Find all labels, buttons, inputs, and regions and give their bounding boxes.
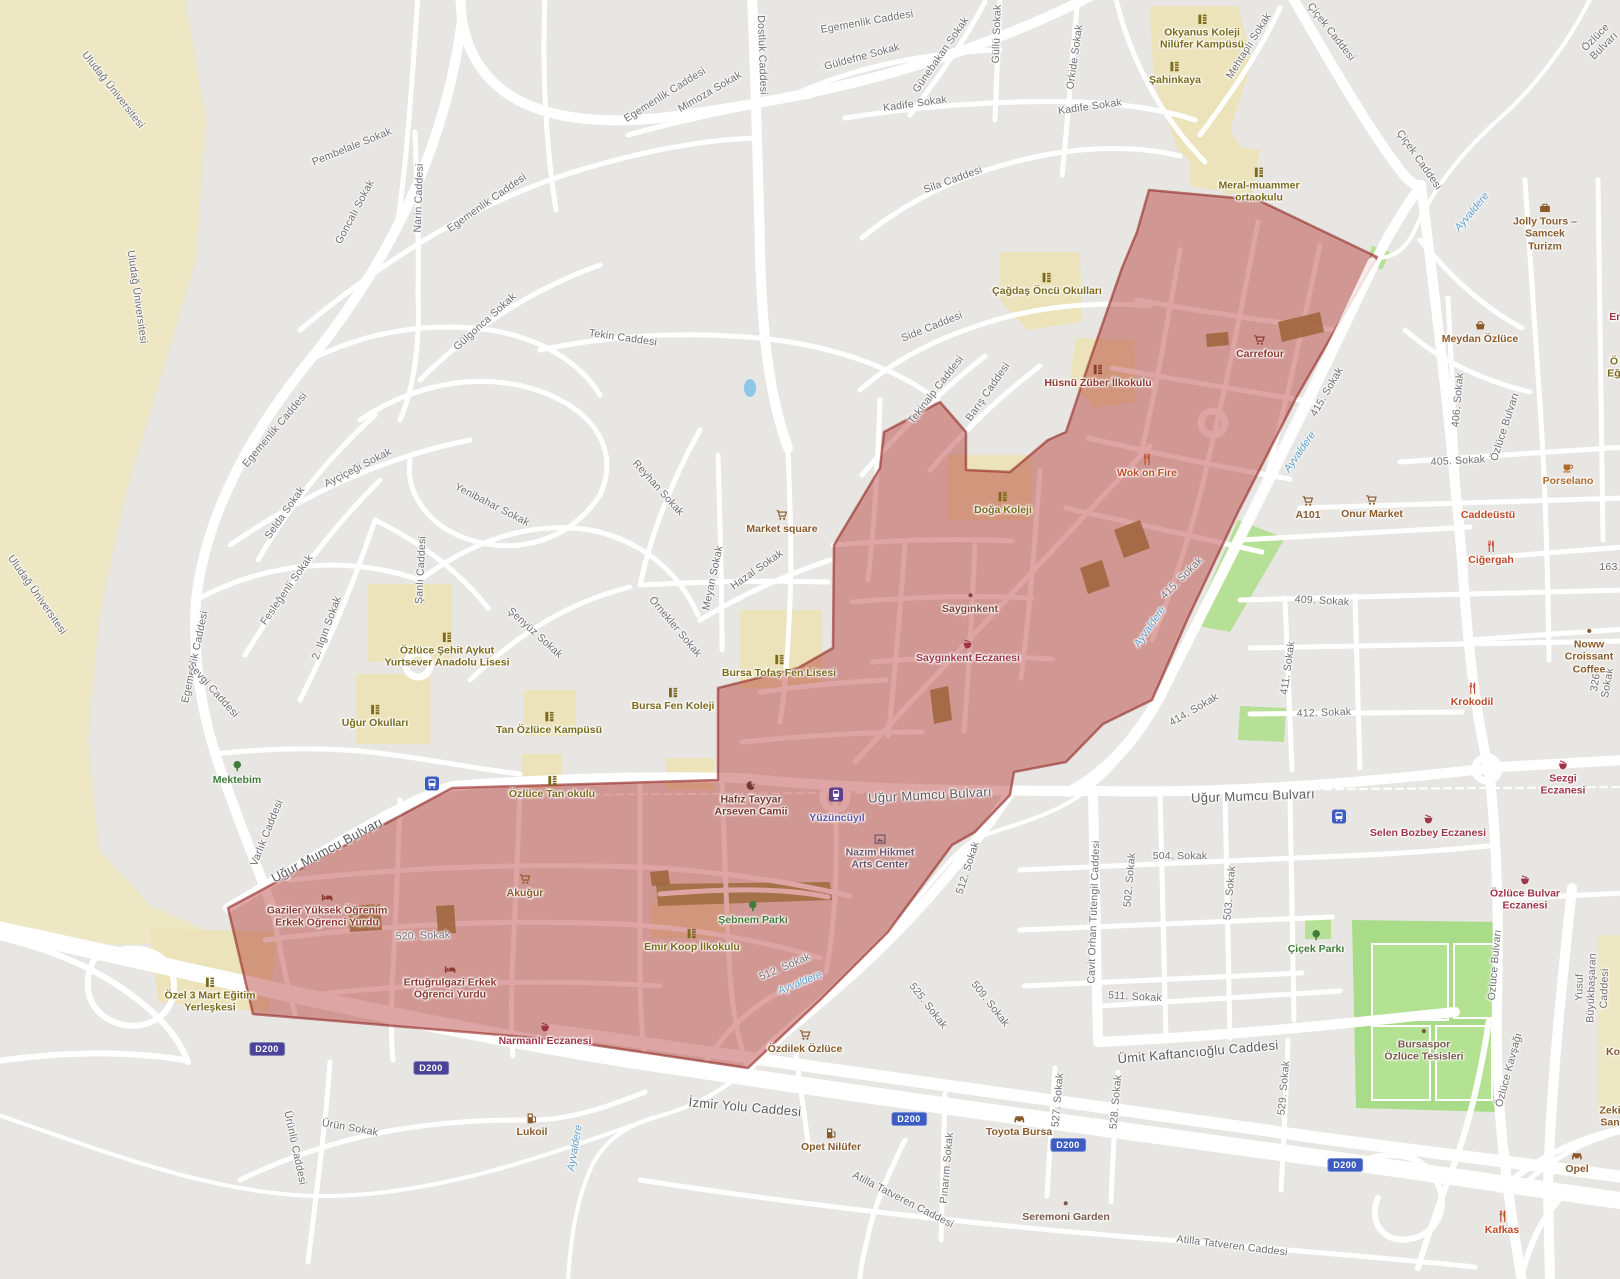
map-label: Varlık Caddesi (248, 798, 286, 868)
map-label: 412. Sokak (1297, 706, 1352, 720)
poi-label[interactable]: Krokodil (1451, 682, 1494, 708)
map-label: Gülgonca Sokak (451, 291, 519, 354)
map-label: 509. Sokak (968, 979, 1011, 1030)
poi-label[interactable]: Doğa Koleji (974, 490, 1032, 516)
cart-icon (775, 509, 788, 522)
poi-label[interactable]: Opet Nilüfer (801, 1127, 861, 1153)
poi-label[interactable]: Ertuğrulgazi Erkek Öğrenci Yurdu (404, 963, 497, 1002)
map-label: 525. Sokak (906, 981, 949, 1032)
map-label: 503. Sokak (1221, 865, 1238, 920)
map-label: Ayvaldere (565, 1124, 585, 1172)
map-label: Barış Caddesi (963, 360, 1012, 423)
fork-icon (1495, 1210, 1508, 1223)
map-label: Cavit Orhan Tütengil Caddesi (1085, 840, 1102, 984)
poi-label[interactable]: Akuğur (507, 873, 544, 899)
label-text: Özdilek Özlüce (768, 1043, 843, 1055)
label-text: Egemenlik Caddesi (179, 610, 210, 704)
route-badge-d200: D200 (1050, 1138, 1086, 1152)
map-label: Mimoza Sokak (676, 69, 744, 115)
label-text: A101 (1295, 509, 1320, 521)
label-text: Carrefour (1236, 348, 1284, 360)
map-label: Orkide Sokak (1064, 24, 1085, 91)
label-text: Ayvaldere (1452, 190, 1491, 233)
map-label: Mehtaplı Sokak (1224, 11, 1274, 81)
fuel-icon (825, 1127, 838, 1140)
mortar-icon (961, 638, 974, 651)
label-text: Kadife Sokak (882, 93, 947, 114)
bed-icon (321, 891, 334, 904)
label-text: İzmir Yolu Caddesi (688, 1094, 802, 1119)
map-label: Uludağ Üniversitesi (5, 553, 69, 637)
poi-label[interactable]: Selen Bozbey Eczanesi (1370, 813, 1486, 839)
map-label: Sila Caddesi (922, 164, 984, 197)
poi-label[interactable]: Çağdaş Öncü Okulları (992, 271, 1102, 297)
map-label: Günebakan Sokak (910, 15, 971, 95)
map-label: Kadife Sokak (882, 93, 947, 114)
poi-label[interactable]: Özlüce Bulvar Eczanesi (1478, 874, 1573, 913)
mortar-icon (1557, 759, 1570, 772)
poi-label[interactable]: Saygınkent Eczanesi (916, 638, 1020, 664)
label-text: Meydan Özlüce (1442, 333, 1518, 345)
map-label: Uludağ Üniversitesi (79, 49, 147, 131)
label-text: Uğur Mumcu Bulvarı (269, 814, 385, 885)
map-label: Çiçek Caddesi (1394, 128, 1444, 193)
label-text: 504. Sokak (1153, 850, 1208, 862)
map-label: Şanlı Caddesi (413, 536, 429, 605)
poi-label[interactable]: Saygınkent (942, 589, 998, 615)
school-icon (368, 703, 381, 716)
bed-icon (444, 963, 457, 976)
map-label: Pembelale Sokak (310, 125, 393, 168)
fork-icon (1466, 682, 1479, 695)
school-icon (543, 710, 556, 723)
label-text: Doğa Koleji (974, 504, 1032, 516)
label-text: Şahinkaya (1149, 74, 1201, 86)
label-text: Atilla Tatveren Caddesi (1176, 1233, 1288, 1259)
label-text: Dostluk Caddesi (755, 15, 770, 95)
mortar-icon (538, 1021, 551, 1034)
label-text: Narmanlı Eczanesi (499, 1035, 592, 1047)
label-text: Narin Caddesi (412, 163, 426, 233)
map-label: Ayvaldere (776, 969, 824, 998)
map-label: Narin Caddesi (412, 163, 427, 233)
label-text: Mimoza Sokak (676, 69, 744, 115)
label-text: 409. Sokak (1294, 593, 1349, 608)
map-label: Tekinalp Caddesi (906, 353, 967, 426)
label-text: Günebakan Sokak (910, 15, 971, 95)
label-text: Mektebim (213, 774, 261, 786)
map-label: Güldefne Sokak (823, 41, 901, 73)
map-label: Yenibahar Sokak (453, 481, 532, 529)
poi-label[interactable]: Özdilek Özlüce (768, 1029, 843, 1055)
label-text: Uğur Mumcu Bulvarı (868, 784, 993, 805)
poi-label[interactable]: Bursa Tofaş Fen Lisesi (722, 653, 836, 679)
label-text: Özlüce Bulvar Eczanesi (1490, 888, 1560, 912)
poi-label[interactable]: Kafkas (1485, 1210, 1519, 1236)
label-text: Yusuf Büyükbaşaran Caddesi (1573, 953, 1611, 1023)
poi-label[interactable]: Şahinkaya (1149, 60, 1201, 86)
label-text: Çağdaş Öncü Okulları (992, 285, 1102, 297)
bus-stop-icon[interactable] (425, 777, 439, 796)
fuel-icon (525, 1112, 538, 1125)
label-text: Özlüce Bulvarı (1488, 391, 1521, 462)
map-label: Ümit Kaftancıoğlu Caddesi (1117, 1037, 1279, 1066)
label-text: Bursa Fen Koleji (632, 700, 715, 712)
label-text: Porselano (1543, 475, 1594, 487)
label-text: Tan Özlüce Kampüsü (496, 724, 602, 736)
label-text: Zeki San (1599, 1105, 1620, 1129)
label-text: Caddeüstü (1461, 509, 1515, 521)
dot-icon (964, 589, 977, 602)
label-text: Varlık Caddesi (248, 798, 285, 868)
label-text: Jolly Tours – Samcek Turizm (1513, 215, 1577, 252)
label-text: 406. Sokak (1449, 372, 1466, 427)
label-text: Opet Nilüfer (801, 1141, 861, 1153)
label-text: Fesleğenli Sokak (258, 552, 316, 627)
map-label: 411. Sokak (1278, 641, 1298, 696)
label-text: Market square (746, 523, 817, 535)
poi-label[interactable]: Bursa Fen Koleji (632, 686, 715, 712)
label-text: Goncalı Sokak (333, 178, 377, 246)
label-text: 528. Sokak (1107, 1074, 1124, 1129)
poi-label[interactable]: Toyota Bursa (986, 1112, 1052, 1138)
label-text: Ürün Sokak (321, 1117, 379, 1139)
map-label: Atilla Tatveren Caddesi (1176, 1233, 1288, 1259)
car-icon (1571, 1149, 1584, 1162)
label-text: 412. Sokak (1297, 706, 1352, 720)
label-text: Selda Sokak (262, 484, 307, 541)
crescent-icon (744, 780, 757, 793)
label-text: Uğur Okulları (342, 717, 409, 729)
school-icon (686, 927, 699, 940)
poi-label[interactable]: Özel 3 Mart Eğitim Yerleşkesi (164, 976, 255, 1015)
poi-label[interactable]: Ö Eğ (1607, 356, 1620, 381)
label-text: Ümit Kaftancıoğlu Caddesi (1117, 1037, 1279, 1066)
map-label: Egemenlik Caddesi (179, 610, 211, 704)
poi-label[interactable]: Sezgi Eczanesi (1535, 759, 1592, 798)
label-text: Egemenlik Caddesi (445, 171, 529, 235)
label-text: Yüzüncüyıl (809, 812, 864, 824)
poi-label[interactable]: Mektebim (213, 760, 261, 786)
label-text: 414. Sokak (1167, 691, 1220, 729)
label-text: Selen Bozbey Eczanesi (1370, 827, 1486, 839)
label-text: Örnekler Sokak (646, 594, 704, 659)
map-label: 504. Sokak (1153, 850, 1208, 862)
cart-icon (1301, 495, 1314, 508)
poi-label[interactable]: Ciğergah (1468, 540, 1514, 566)
route-badge-d200: D200 (891, 1112, 927, 1126)
map-label: 415. Sokak (1158, 554, 1205, 601)
label-text: Akuğur (507, 887, 544, 899)
label-text: Cavit Orhan Tütengil Caddesi (1085, 840, 1102, 983)
poi-label[interactable]: Caddeüstü (1461, 495, 1515, 521)
map-label: Egemenlik Caddesi (622, 65, 708, 125)
poi-label[interactable]: Ko (1606, 1046, 1620, 1058)
map-label: 326. Sokak (1587, 665, 1617, 699)
label-text: 520. Sokak (396, 929, 451, 943)
label-text: Okyanus Koleji Nilüfer Kampüsü (1160, 27, 1244, 51)
label-text: Ayvaldere (565, 1124, 585, 1172)
map-label: Özlüce Kavşağı (1493, 1032, 1525, 1109)
school-icon (1253, 166, 1266, 179)
label-text: 503. Sokak (1221, 865, 1238, 920)
label-text: Mehtaplı Sokak (1224, 11, 1274, 81)
label-text: Sila Caddesi (922, 164, 984, 196)
cart-icon (1365, 494, 1378, 507)
route-badge-d200: D200 (1327, 1158, 1363, 1172)
map-label: 520. Sokak (396, 929, 451, 943)
label-text: 512. Sokak (757, 951, 812, 983)
map-label: Uğur Mumcu Bulvarı (1191, 786, 1315, 806)
poi-label[interactable]: Özlüce Tan okulu (509, 774, 595, 800)
label-text: Bursaspor Özlüce Tesisleri (1384, 1039, 1463, 1063)
label-text: Yenibahar Sokak (453, 481, 532, 529)
label-text: Ko (1606, 1046, 1620, 1058)
label-text: Gaziler Yüksek Öğrenim Erkek Öğrenci Yur… (267, 905, 388, 929)
dot-icon (1060, 1197, 1073, 1210)
poi-label[interactable]: Carrefour (1236, 334, 1284, 360)
label-text: Tekin Caddesi (588, 327, 658, 348)
poi-label[interactable]: Narmanlı Eczanesi (499, 1021, 592, 1047)
label-text: Gülgonca Sokak (451, 291, 518, 353)
label-text: Krokodil (1451, 696, 1494, 708)
map-label: Güllü Sokak (990, 4, 1004, 63)
map-label: Ürünlü Caddesi (281, 1110, 309, 1186)
school-icon (1195, 13, 1208, 26)
label-text: Emir Koop İlkokulu (644, 941, 740, 953)
route-badge-d200: D200 (413, 1061, 449, 1075)
label-text: Uludağ Üniversitesi (125, 249, 150, 344)
map-label: 2. Ilgın Sokak (310, 595, 344, 662)
map-label: Atilla Tatveren Caddesi (850, 1169, 955, 1231)
label-text: Egemenlik Caddesi (622, 65, 708, 125)
map-label: Özlüce Bulvarı (1579, 21, 1620, 63)
map-label: 528. Sokak (1107, 1074, 1124, 1129)
label-text: Pembelale Sokak (310, 125, 393, 168)
label-text: Nazım Hikmet Arts Center (846, 847, 915, 871)
label-text: Onur Market (1341, 508, 1403, 520)
poi-label[interactable]: Hafız Tayyar Arseven Camii (715, 780, 788, 819)
poi-label[interactable]: Yüzüncüyıl (809, 812, 864, 824)
label-text: Egemenlik Caddesi (240, 390, 310, 470)
cup-icon (1562, 461, 1575, 474)
label-text: Şebnem Parkı (718, 914, 787, 926)
car-icon (1012, 1112, 1025, 1125)
tree-icon (1310, 929, 1323, 942)
map-label: Pınarım Sokak (938, 1132, 957, 1204)
map-label: Ürün Sokak (321, 1117, 379, 1139)
map-label: Uludağ Üniversitesi (124, 249, 149, 344)
poi-label[interactable]: A101 (1295, 495, 1320, 521)
train-station-icon[interactable] (829, 788, 843, 807)
map-label: 527. Sokak (1049, 1072, 1066, 1127)
label-text: Wok on Fire (1117, 467, 1177, 479)
school-icon (773, 653, 786, 666)
label-text: Uğur Mumcu Bulvarı (1191, 786, 1315, 805)
map-label: Şenyüz Sokak (505, 605, 565, 661)
map-label: Side Caddesi (900, 309, 965, 345)
poi-label[interactable]: Onur Market (1341, 494, 1403, 520)
label-text: Ciğergah (1468, 554, 1514, 566)
label-text: Orkide Sokak (1064, 24, 1085, 90)
label-text: Ö Eğ (1607, 356, 1620, 380)
map-label: Ayvaldere (1452, 190, 1491, 234)
poi-label[interactable]: Opel (1565, 1149, 1588, 1175)
poi-label[interactable]: Özlüce Şehit Aykut Yurtsever Anadolu Lis… (384, 631, 509, 670)
map-label: Egemenlik Caddesi (820, 8, 915, 36)
poi-label[interactable]: Zeki San (1599, 1105, 1620, 1130)
label-text: 525. Sokak (907, 981, 950, 1031)
map-label: Egemenlik Caddesi (445, 171, 529, 235)
label-text: 415. Sokak (1158, 554, 1205, 601)
label-text: 405. Sokak (1430, 453, 1485, 468)
poi-label[interactable]: Wok on Fire (1117, 453, 1177, 479)
map-label: 502. Sokak (1121, 852, 1138, 907)
map-label: 405. Sokak (1430, 453, 1485, 468)
label-text: Çiçek Parkı (1288, 943, 1345, 955)
label-text: 163. (1599, 561, 1620, 573)
label-text: Toyota Bursa (986, 1126, 1052, 1138)
label-text: Kafkas (1485, 1224, 1519, 1236)
mortar-icon (1421, 813, 1434, 826)
label-text: Şanlı Caddesi (413, 536, 429, 605)
label-text: 512. Sokak (954, 840, 982, 896)
poi-label[interactable]: Nazım Hikmet Arts Center (846, 833, 915, 872)
poi-label[interactable]: Çiçek Parkı (1288, 929, 1345, 955)
label-text: Çiçek Caddesi (1305, 0, 1358, 63)
label-text: Ayvaldere (1132, 604, 1169, 649)
map-label: 511. Sokak (1108, 989, 1162, 1004)
bus-stop-icon[interactable] (1332, 810, 1346, 829)
poi-label[interactable]: Market square (746, 509, 817, 535)
poi-label[interactable]: Okyanus Koleji Nilüfer Kampüsü (1160, 13, 1244, 52)
poi-label[interactable]: Noww Croissant Coffee (1565, 624, 1613, 675)
label-text: 529. Sokak (1275, 1060, 1292, 1115)
label-text: Egemenlik Caddesi (820, 8, 915, 36)
label-text: Bursa Tofaş Fen Lisesi (722, 667, 836, 679)
map-label: Dostluk Caddesi (754, 15, 769, 95)
poi-label[interactable]: Meydan Özlüce (1442, 319, 1518, 345)
map-label: Özlüce Bulvarı (1486, 929, 1505, 1001)
label-text: Güllü Sokak (990, 4, 1004, 63)
label-text: Barış Caddesi (963, 360, 1012, 423)
label-text: Saygınkent Eczanesi (916, 652, 1020, 664)
fork-icon (1141, 453, 1154, 466)
poi-label[interactable]: Şebnem Parkı (718, 900, 787, 926)
map-label: Çiçek Caddesi (1304, 0, 1357, 63)
label-text: 411. Sokak (1278, 641, 1297, 696)
map-label: Ayvaldere (1132, 604, 1169, 649)
map-canvas[interactable]: Egemenlik CaddesiEgemenlik CaddesiEgemen… (0, 0, 1620, 1279)
bag-icon (1481, 495, 1494, 508)
poi-label[interactable]: Emir Koop İlkokulu (644, 927, 740, 953)
poi-label[interactable]: En (1609, 311, 1620, 323)
label-text: Noww Croissant Coffee (1565, 638, 1613, 675)
school-icon (996, 490, 1009, 503)
tree-icon (746, 900, 759, 913)
map-label: Ayçiçeği Sokak (322, 446, 393, 491)
label-text: Ürünlü Caddesi (281, 1110, 308, 1186)
dot-icon (1583, 624, 1596, 637)
map-label: Ayvaldere (1282, 429, 1319, 474)
label-text: Side Caddesi (900, 309, 965, 344)
map-label: Fesleğenli Sokak (258, 552, 316, 627)
school-icon (546, 774, 559, 787)
label-text: Ayçiçeği Sokak (322, 446, 393, 490)
map-label: 512. Sokak (954, 840, 983, 896)
poi-label[interactable]: Lukoil (517, 1112, 548, 1138)
map-label: Selda Sokak (262, 484, 307, 541)
fork-icon (1484, 540, 1497, 553)
school-icon (1040, 271, 1053, 284)
label-text: Özlüce Bulvarı (1579, 21, 1620, 62)
map-label: 409. Sokak (1294, 593, 1349, 608)
map-labels-layer: Egemenlik CaddesiEgemenlik CaddesiEgemen… (0, 0, 1620, 1279)
map-label: İzmir Yolu Caddesi (688, 1094, 802, 1119)
tree-icon (231, 760, 244, 773)
poi-label[interactable]: Jolly Tours – Samcek Turizm (1508, 201, 1583, 252)
poi-label[interactable]: Tan Özlüce Kampüsü (496, 710, 602, 736)
label-text: Ayvaldere (776, 969, 824, 998)
map-label: Sevgi Caddesi (185, 660, 241, 721)
route-badge-d200: D200 (249, 1042, 285, 1056)
map-label: 415. Sokak (1308, 365, 1346, 418)
poi-label[interactable]: Porselano (1543, 461, 1594, 487)
label-text: Özlüce Şehit Aykut Yurtsever Anadolu Lis… (384, 645, 509, 669)
map-label: Egemenlik Caddesi (240, 390, 310, 470)
label-text: Opel (1565, 1163, 1588, 1175)
label-text: Hafız Tayyar Arseven Camii (715, 794, 788, 818)
label-text: Kadife Sokak (1057, 96, 1122, 117)
label-text: Özlüce Bulvarı (1486, 929, 1504, 1001)
dot-icon (1418, 1025, 1431, 1038)
case-icon (1539, 201, 1552, 214)
map-label: 163. (1599, 561, 1620, 573)
poi-label[interactable]: Uğur Okulları (342, 703, 409, 729)
label-text: Özlüce Kavşağı (1493, 1032, 1524, 1109)
label-text: Sezgi Eczanesi (1541, 773, 1586, 797)
map-label: 414. Sokak (1167, 691, 1220, 729)
cart-icon (519, 873, 532, 886)
school-icon (440, 631, 453, 644)
poi-label[interactable]: Hüsnü Züber İlkokulu (1044, 363, 1151, 389)
label-text: Özlüce Tan okulu (509, 788, 595, 800)
label-text: Atilla Tatveren Caddesi (851, 1169, 956, 1230)
map-label: 512. Sokak (757, 951, 812, 984)
poi-label[interactable]: Bursaspor Özlüce Tesisleri (1384, 1025, 1463, 1064)
label-text: 415. Sokak (1308, 365, 1346, 418)
map-label: Uğur Mumcu Bulvarı (868, 784, 993, 806)
poi-label[interactable]: Seremoni Garden (1022, 1197, 1110, 1223)
poi-label[interactable]: Gaziler Yüksek Öğrenim Erkek Öğrenci Yur… (267, 891, 388, 930)
label-text: Ertuğrulgazi Erkek Öğrenci Yurdu (404, 977, 497, 1001)
map-label: Reyhan Sokak (630, 458, 687, 519)
cart-icon (798, 1029, 811, 1042)
mortar-icon (1519, 874, 1532, 887)
label-text: Şenyüz Sokak (505, 605, 565, 660)
map-label: Meyan Sokak (700, 545, 726, 612)
label-text: Özel 3 Mart Eğitim Yerleşkesi (164, 990, 255, 1014)
school-icon (1168, 60, 1181, 73)
poi-label[interactable]: Meral-muammer ortaokulu (1218, 166, 1299, 205)
label-text: 527. Sokak (1049, 1072, 1066, 1127)
label-text: Meyan Sokak (700, 545, 725, 612)
label-text: 2. Ilgın Sokak (310, 595, 344, 662)
map-label: Uğur Mumcu Bulvarı (269, 814, 386, 886)
frame-icon (873, 833, 886, 846)
label-text: Hüsnü Züber İlkokulu (1044, 377, 1151, 389)
map-label: Hazal Sokak (728, 547, 785, 592)
